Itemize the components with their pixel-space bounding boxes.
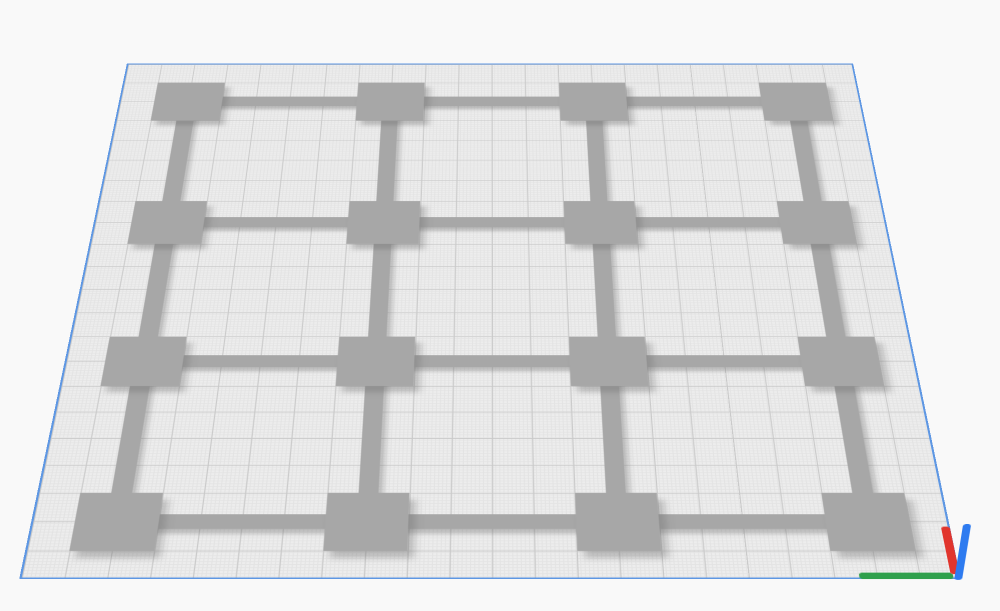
calibration-bar-vertical[interactable] <box>598 361 627 522</box>
calibration-square[interactable] <box>798 336 884 386</box>
calibration-model[interactable] <box>22 64 958 577</box>
z-axis-indicator <box>954 524 971 580</box>
calibration-square[interactable] <box>151 83 225 121</box>
perspective-camera <box>0 0 1000 611</box>
calibration-square[interactable] <box>128 201 207 244</box>
calibration-bar-vertical[interactable] <box>106 361 153 522</box>
calibration-bar-horizontal[interactable] <box>143 355 376 367</box>
calibration-bar-vertical[interactable] <box>357 361 386 522</box>
calibration-square[interactable] <box>563 201 638 244</box>
calibration-square[interactable] <box>822 493 915 551</box>
calibration-square[interactable] <box>346 201 420 244</box>
calibration-square[interactable] <box>777 201 856 244</box>
calibration-bar-horizontal[interactable] <box>376 355 609 367</box>
calibration-square[interactable] <box>101 336 187 386</box>
calibration-square[interactable] <box>355 83 425 121</box>
build-plate <box>19 63 961 579</box>
calibration-square[interactable] <box>70 493 163 551</box>
calibration-square[interactable] <box>336 336 416 386</box>
calibration-square[interactable] <box>568 336 648 386</box>
slicer-3d-viewport[interactable] <box>0 0 1000 611</box>
calibration-square[interactable] <box>559 83 629 121</box>
calibration-bar-horizontal[interactable] <box>608 355 841 367</box>
calibration-bar-horizontal[interactable] <box>367 514 618 528</box>
calibration-square[interactable] <box>575 493 662 551</box>
x-axis-indicator <box>859 573 954 580</box>
calibration-bar-horizontal[interactable] <box>617 514 869 528</box>
calibration-bar-vertical[interactable] <box>830 361 878 522</box>
calibration-bar-horizontal[interactable] <box>116 514 368 528</box>
calibration-square[interactable] <box>759 83 833 121</box>
calibration-square[interactable] <box>323 493 410 551</box>
